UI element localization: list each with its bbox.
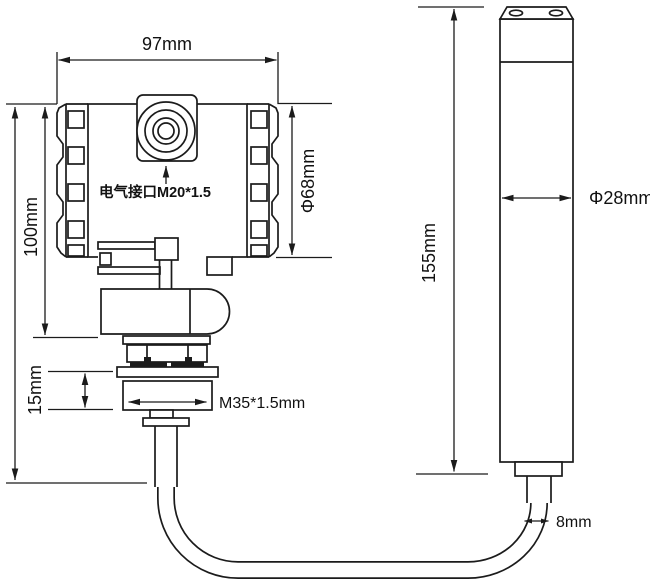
rib-fin [251,147,267,164]
dimension-label-100mm: 100mm [21,197,41,257]
connection-tube [155,426,177,487]
rib-fin [68,147,84,164]
probe-vent-hole [550,10,563,16]
bracket-plate-bottom [98,267,160,274]
right-ribbed-cap [247,104,278,257]
sensor-dimension-drawing: 97mm 100mm 15mm Φ68mm 电气接口M20*1.5 M35*1.… [0,0,650,584]
right-terminal-block [207,257,232,275]
probe-vent-hole [510,10,523,16]
rib-fin [251,221,267,238]
dimension-97mm: 97mm [6,34,332,104]
rib-fin [251,184,267,201]
dimension-label-m35: M35*1.5mm [219,395,305,412]
bolt-cap [144,357,151,362]
probe-step [515,462,562,476]
left-ribbed-cap [57,104,88,257]
dimension-68mm: Φ68mm [276,106,332,258]
sensor-block [101,289,230,334]
rib-fin [251,245,267,256]
spacer-plate [123,336,210,344]
thread-block [123,381,212,410]
electrical-connector [137,95,197,161]
dimension-label-68mm: Φ68mm [298,149,318,213]
dimension-155mm: 155mm [416,7,488,474]
dimension-label-8mm: 8mm [556,514,592,531]
dimension-100mm: 100mm [21,107,98,338]
bracket-block [100,253,111,265]
electrical-port-label: 电气接口M20*1.5 [99,183,211,201]
stem-lines [160,260,172,289]
hex-nut [127,345,207,362]
mounting-flange [117,367,218,377]
bracket-plate-top [98,242,155,249]
probe-body [500,19,573,462]
process-connection [117,336,218,487]
technical-drawing-page: 97mm 100mm 15mm Φ68mm 电气接口M20*1.5 M35*1.… [0,0,650,584]
probe-neck [527,476,551,503]
dimension-15mm: 15mm [25,365,113,415]
rib-fin [68,184,84,201]
collar-ring [143,418,189,426]
rib-fin [68,221,84,238]
stem-block [155,238,178,260]
dimension-label-155mm: 155mm [419,223,439,283]
dimension-label-15mm: 15mm [25,365,45,415]
dimension-label-28mm: Φ28mm [589,188,650,208]
probe-assembly [500,7,573,503]
rib-fin [251,111,267,128]
connector-ring-inner [158,123,174,139]
rib-fin [68,245,84,256]
transmitter-assembly [57,95,278,487]
rib-fin [68,111,84,128]
bolt-cap [185,357,192,362]
thread-stem [150,410,173,418]
dimension-label-97mm: 97mm [142,34,192,54]
connection-cable [166,485,539,570]
